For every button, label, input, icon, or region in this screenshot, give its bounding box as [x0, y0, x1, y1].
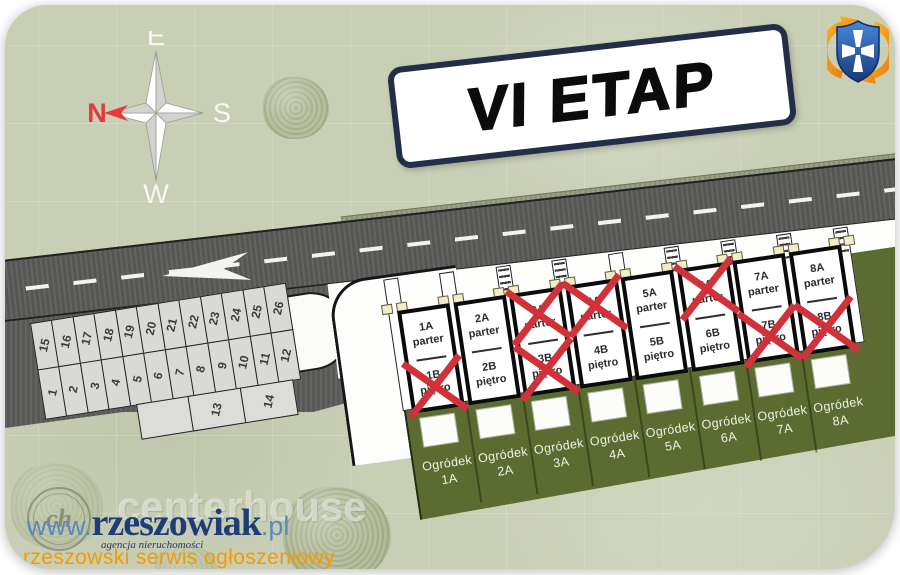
- unit-floor: parter: [524, 315, 557, 333]
- site-plan-card: 151617181920212223242526 123456789101112…: [5, 5, 895, 569]
- parking-spot-13: 13: [187, 388, 246, 432]
- terrace-8A: [810, 354, 850, 389]
- parking-spot-number: 2: [66, 384, 81, 394]
- terrace-4A: [587, 388, 627, 423]
- parking-spot-14: 14: [239, 379, 298, 423]
- parking-spot-number: 17: [79, 330, 96, 346]
- unit-floor: piętro: [531, 364, 563, 382]
- terrace-2A: [475, 404, 515, 439]
- unit-floor: parter: [579, 307, 612, 325]
- parking-spot-number: 14: [260, 393, 277, 409]
- unit-floor: piętro: [811, 322, 843, 340]
- terrace-7A: [754, 362, 794, 397]
- unit-8B: 8Bpiętro: [800, 298, 851, 351]
- parking-spot-number: 7: [172, 368, 187, 378]
- parking-spot-number: 26: [270, 300, 287, 316]
- unit-1B: 1Bpiętro: [409, 356, 460, 409]
- terrace-3A: [531, 396, 571, 431]
- unit-7A: 7Aparter: [737, 258, 788, 311]
- parking-spot-number: 15: [36, 337, 53, 353]
- unit-7B: 7Bpiętro: [744, 306, 795, 359]
- unit-8A: 8Aparter: [793, 249, 844, 302]
- unit-4B: 4Bpiętro: [576, 331, 627, 384]
- entry-pad: [843, 235, 855, 247]
- phase-title: VI ETAP: [468, 47, 717, 145]
- unit-5A: 5Aparter: [625, 274, 676, 327]
- url-prefix: www.: [27, 511, 92, 542]
- unit-6A: 6Aparter: [681, 266, 732, 319]
- parking-spot-number: 1: [45, 388, 60, 398]
- unit-floor: piętro: [699, 339, 731, 357]
- unit-2B: 2Bpiętro: [465, 348, 516, 401]
- unit-3A: 3Aparter: [513, 291, 564, 344]
- parking-spot-number: 22: [185, 314, 202, 330]
- unit-floor: parter: [747, 282, 780, 300]
- parking-spot-number: 25: [249, 303, 266, 319]
- parking-spot-number: 23: [206, 310, 223, 326]
- developer-logo-icon: [827, 13, 889, 87]
- parking-spot-number: 5: [130, 374, 145, 384]
- parking-spot-number: 3: [87, 381, 102, 391]
- parking-spot-number: 16: [58, 334, 75, 350]
- compass-north-label: N: [87, 98, 107, 128]
- unit-floor: piętro: [475, 372, 507, 390]
- unit-6B: 6Bpiętro: [688, 314, 739, 367]
- compass-south-label: S: [213, 98, 231, 128]
- unit-floor: piętro: [587, 355, 619, 373]
- compass-west-label: W: [143, 179, 169, 209]
- parking-spot-number: 10: [235, 354, 252, 370]
- parking-spot-number: 20: [142, 320, 159, 336]
- parking-spot-empty: [136, 396, 195, 440]
- phase-title-plate: VI ETAP: [387, 23, 798, 170]
- site-tagline: rzeszowski serwis ogłoszeniowy: [23, 546, 335, 569]
- unit-floor: piętro: [755, 330, 787, 348]
- terrace-5A: [643, 379, 683, 414]
- terrace-1A: [419, 413, 459, 448]
- parking-spot-number: 6: [151, 371, 166, 381]
- url-suffix: .pl: [261, 511, 290, 542]
- entry-pad: [381, 304, 393, 316]
- unit-5B: 5Bpiętro: [632, 323, 683, 376]
- unit-1A: 1Aparter: [402, 308, 453, 361]
- parking-spot-number: 18: [100, 327, 117, 343]
- parking-spot-number: 13: [209, 401, 226, 417]
- unit-floor: parter: [468, 324, 501, 342]
- road-direction-arrow-icon: [161, 251, 252, 291]
- parking-spot-number: 9: [214, 361, 229, 371]
- tree-icon: [263, 77, 329, 139]
- unit-floor: piętro: [643, 347, 675, 365]
- unit-floor: parter: [635, 299, 668, 317]
- parking-spot-number: 8: [193, 364, 208, 374]
- parking-spot-number: 24: [227, 307, 244, 323]
- compass-rose: E S W N: [81, 31, 231, 209]
- terrace-6A: [698, 371, 738, 406]
- unit-2A: 2Aparter: [457, 299, 508, 352]
- unit-3B: 3Bpiętro: [521, 339, 572, 392]
- unit-floor: parter: [691, 290, 724, 308]
- unit-floor: parter: [412, 332, 445, 350]
- parking-spot-number: 21: [164, 317, 181, 333]
- parking-spot-number: 19: [121, 324, 138, 340]
- unit-floor: parter: [803, 274, 836, 292]
- compass-east-label: E: [147, 31, 165, 51]
- parking-spot-number: 11: [256, 351, 272, 367]
- parking-spot-number: 12: [277, 347, 294, 363]
- unit-floor: piętro: [419, 380, 451, 398]
- parking-spot-number: 4: [108, 378, 123, 388]
- unit-4A: 4Aparter: [569, 283, 620, 336]
